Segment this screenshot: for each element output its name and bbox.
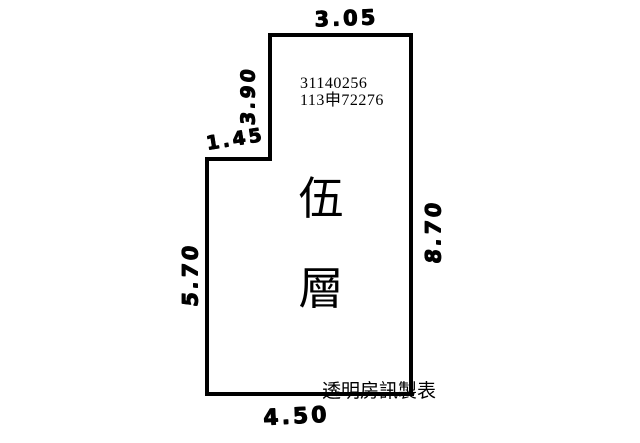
floor-label-first-char: 伍	[296, 162, 346, 227]
floor-plan-sheet: 3.05 3.90 1.45 5.70 8.70 4.50 31140256 1…	[0, 0, 640, 443]
plan-wall-step	[205, 157, 272, 161]
dimension-notch-label: 1.45	[199, 123, 272, 156]
plan-wall-bottom	[205, 392, 414, 396]
dimension-left-label: 5.70	[177, 232, 203, 319]
dimension-right-label: 8.70	[420, 189, 446, 276]
floor-label-second-char: 層	[296, 252, 346, 317]
case-number-line2: 113申72276	[300, 92, 384, 109]
plan-wall-right	[409, 33, 413, 396]
parcel-number-line1: 31140256	[300, 75, 384, 92]
plan-wall-top	[268, 33, 413, 37]
dimension-bottom-label: 4.50	[251, 402, 340, 432]
plan-wall-upper-left	[268, 33, 272, 161]
plan-wall-lower-left	[205, 157, 209, 396]
dimension-top-label: 3.05	[302, 4, 391, 31]
credit-label: 透明房訊製表	[322, 376, 436, 403]
parcel-numbers: 31140256 113申72276	[300, 75, 384, 109]
